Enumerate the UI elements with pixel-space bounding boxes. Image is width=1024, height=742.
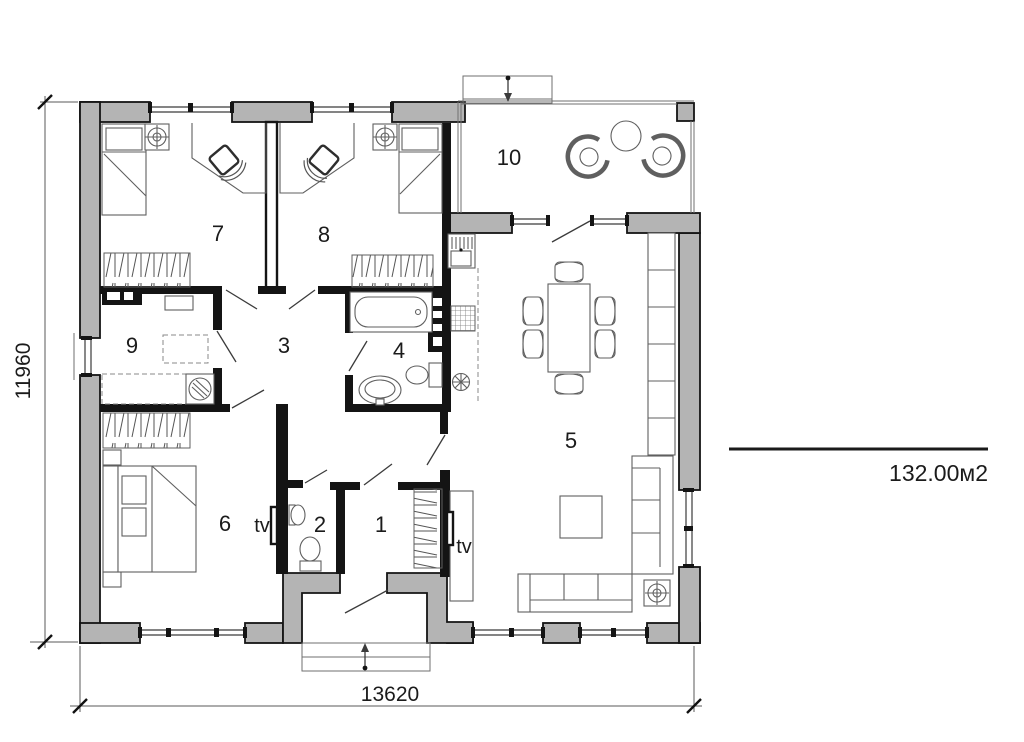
dining-chair	[595, 297, 615, 325]
armchair	[563, 133, 610, 181]
window-bottom-living-1	[471, 627, 545, 638]
room2-label: 2	[314, 512, 326, 537]
window-top-left	[148, 102, 234, 113]
counter-dashed	[102, 374, 187, 404]
porch-steps	[302, 643, 430, 671]
desk-chair-7	[205, 142, 249, 186]
wall-bedroom6-right	[276, 404, 288, 574]
wall-storage-right-upper	[213, 294, 222, 330]
door-living	[427, 435, 445, 465]
wall-kitchen-left	[442, 286, 451, 412]
stove-hob	[451, 306, 475, 331]
dining-chair	[523, 297, 543, 325]
room7-label: 7	[212, 221, 224, 246]
armchair	[641, 132, 688, 180]
tall-cabinets	[648, 233, 675, 455]
bedroom7-furniture	[102, 123, 266, 287]
wall-wc-hall-tee	[330, 482, 360, 490]
terrace-table	[611, 121, 641, 151]
storage-room-furniture	[102, 288, 214, 404]
window-bottom-bedroom	[138, 627, 247, 638]
room8-label: 8	[318, 222, 330, 247]
tv-label-living: tv	[456, 536, 472, 558]
door-bathroom	[349, 341, 367, 371]
bathtub	[350, 292, 432, 332]
window-left	[74, 333, 92, 380]
wardrobe-entry	[414, 489, 442, 568]
bedroom8-furniture	[280, 123, 442, 287]
toilet-bath	[406, 363, 442, 387]
room10-label: 10	[497, 145, 521, 170]
tv-bedroom	[271, 507, 277, 544]
wardrobe-6	[103, 413, 190, 448]
dimension-width: 13620	[361, 683, 419, 706]
nightstand-6a	[103, 450, 121, 465]
door-terrace	[552, 221, 590, 242]
washing-machine	[186, 374, 214, 404]
door-bedroom7	[226, 290, 257, 309]
tv-living	[447, 512, 453, 545]
dining-table	[548, 284, 590, 372]
room5-label: 5	[565, 428, 577, 453]
desk-chair-8	[299, 142, 343, 186]
terrace-pillar	[677, 103, 694, 121]
room4-label: 4	[393, 338, 405, 363]
terrace-wall-corner	[627, 213, 700, 233]
nightstand-6b	[103, 572, 121, 587]
wardrobe-7	[104, 253, 190, 287]
door-storage	[217, 331, 236, 362]
bottom-wall-left-corner	[80, 623, 140, 643]
wall-cabinet	[165, 296, 193, 310]
dimension-height: 11960	[12, 343, 35, 400]
porch-wall-left	[283, 573, 340, 643]
window-right-living	[683, 488, 694, 568]
dining-set	[523, 262, 615, 394]
room1-label: 1	[375, 512, 387, 537]
window-terrace-right	[590, 215, 629, 226]
area-label: 132.00м2	[729, 449, 988, 486]
top-wall-pier-right	[392, 102, 465, 122]
terrace-furniture	[563, 121, 687, 181]
tv-label-bedroom: tv	[254, 515, 270, 537]
window-top-right	[310, 102, 394, 113]
left-wall-upper	[80, 102, 100, 338]
dining-chair	[555, 262, 583, 282]
bed-double	[103, 466, 196, 572]
door-front	[345, 590, 388, 613]
terrace-outline	[458, 76, 694, 213]
room6-label: 6	[219, 511, 231, 536]
bed-single-7	[102, 124, 146, 215]
floor-drain-icon	[453, 374, 470, 391]
room3-label: 3	[278, 333, 290, 358]
floor-lamp	[644, 580, 670, 606]
dining-chair	[523, 330, 543, 358]
wall-wc-north	[288, 480, 303, 488]
wardrobe-8	[352, 255, 433, 287]
porch-wall-right	[387, 573, 473, 643]
terrace-entry-arrow	[504, 76, 512, 102]
right-wall-lower	[679, 567, 700, 643]
wall-wc-hall-divider	[336, 490, 345, 574]
floor-plan-drawing: 11960 13620 132.00м2 7 8 9 3 4 10 5 6 2 …	[0, 0, 1024, 742]
door-bedroom8	[289, 290, 315, 309]
wall-bath-south	[345, 404, 448, 412]
toilet-wc	[300, 537, 321, 571]
wall-bedrooms-divider	[266, 122, 277, 288]
bottom-wall-segment	[245, 623, 283, 643]
wall-storage-bedroom-divider	[100, 404, 230, 412]
entry-hall-furniture	[414, 489, 442, 568]
terrace-wall-pier	[443, 213, 512, 233]
door-entry-hall	[364, 464, 392, 485]
wall-bath-south-flange	[440, 412, 448, 434]
left-wall-lower	[80, 375, 100, 643]
wall-divider-base	[258, 286, 286, 294]
door-wc	[305, 470, 327, 483]
bed-single-8	[399, 124, 442, 213]
floor-plan-page: 11960 13620 132.00м2 7 8 9 3 4 10 5 6 2 …	[0, 0, 1024, 742]
dining-chair	[555, 374, 583, 394]
kitchen-sink	[448, 234, 475, 268]
bedroom6-furniture	[103, 413, 196, 587]
right-wall-upper	[679, 233, 700, 490]
sink-wc	[289, 505, 305, 525]
window-bottom-living-2	[578, 627, 649, 638]
dining-chair	[595, 330, 615, 358]
bottom-wall-pier	[543, 623, 580, 643]
window-terrace-left	[510, 215, 550, 226]
table-dashed	[163, 335, 208, 363]
total-area-text: 132.00м2	[889, 460, 988, 486]
sink-bath	[359, 376, 401, 405]
room9-label: 9	[126, 333, 138, 358]
coffee-table	[560, 496, 602, 538]
top-wall-pier-center	[232, 102, 312, 122]
door-bedroom6	[232, 390, 264, 408]
